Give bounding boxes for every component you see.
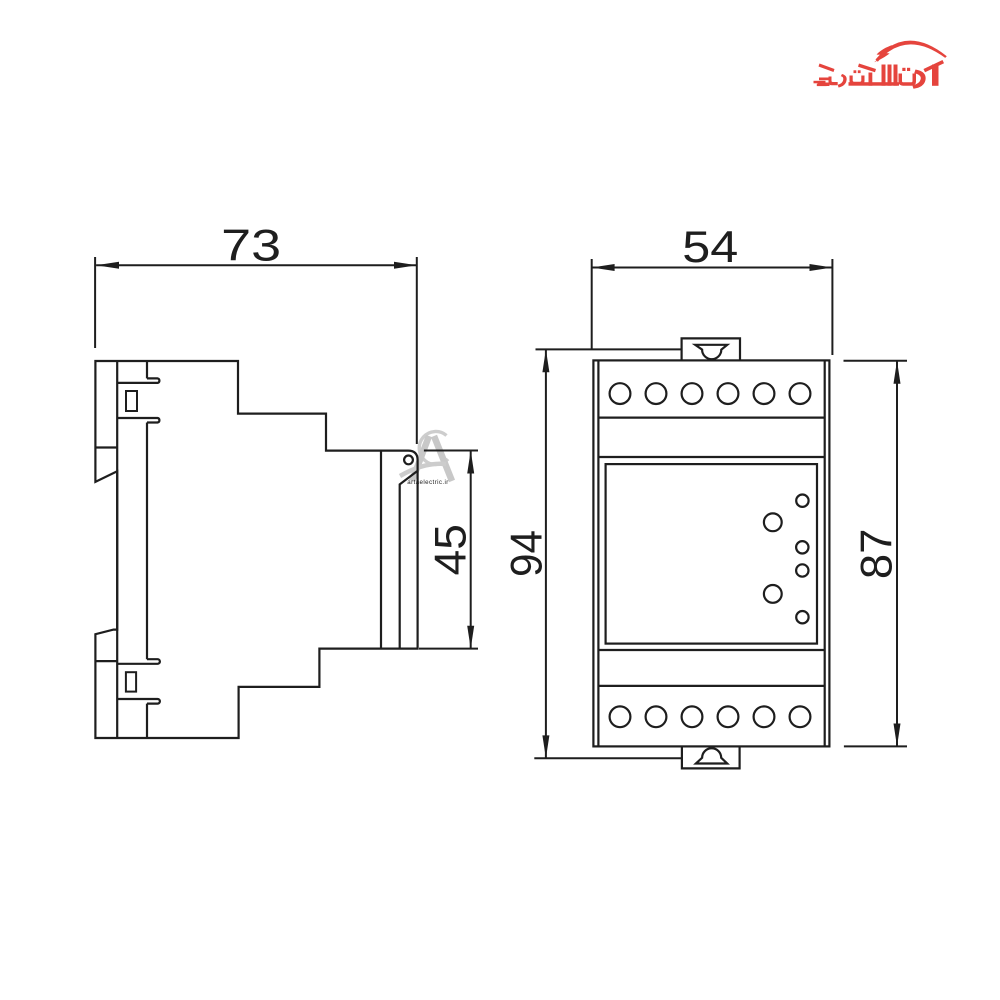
svg-text:87: 87 (852, 529, 901, 580)
svg-text:45: 45 (427, 524, 476, 576)
svg-text:73: 73 (221, 221, 281, 270)
svg-text:94: 94 (502, 530, 551, 577)
svg-text:artaelectric.ir: artaelectric.ir (407, 479, 448, 486)
svg-text:54: 54 (682, 223, 738, 272)
